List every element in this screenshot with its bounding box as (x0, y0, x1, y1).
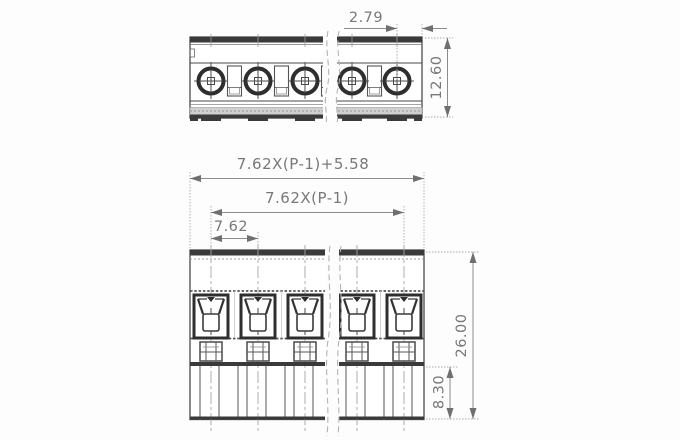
break-gap (325, 246, 339, 436)
mounting-foot (295, 116, 315, 121)
front-view (190, 245, 424, 436)
clamp-opening (288, 295, 322, 338)
dim-label-overall-width: 7.62X(P-1)+5.58 (237, 155, 370, 173)
mounting-foot (342, 116, 362, 121)
dimension-base-height: 8.30 (426, 367, 459, 419)
mounting-foot (201, 116, 221, 121)
dimension-pitch: 7.62 (211, 219, 258, 248)
dimension-top-height: 12.60 (425, 38, 453, 117)
clamp-opening (194, 295, 228, 338)
dim-label-total-height: 26.00 (454, 313, 470, 357)
dim-label-pitch: 7.62 (214, 219, 248, 235)
wire-slot (368, 66, 382, 96)
dim-label-screw-offset: 2.79 (349, 10, 383, 26)
top-view (190, 31, 422, 125)
mounting-foot (387, 116, 407, 121)
solder-pin (200, 342, 222, 361)
drawing-canvas: 2.79 12.60 (0, 0, 680, 440)
solder-pin (393, 342, 415, 361)
break-gap (323, 32, 337, 125)
solder-pin (294, 342, 316, 361)
clamp-opening (387, 295, 421, 338)
solder-pin (247, 342, 269, 361)
dim-label-centers-width: 7.62X(P-1) (265, 189, 349, 207)
mounting-foot (248, 116, 268, 121)
wire-slot (275, 66, 289, 96)
dim-label-top-height: 12.60 (429, 55, 445, 99)
clamp-opening (241, 295, 275, 338)
dim-label-base-height: 8.30 (432, 375, 448, 409)
mounting-foot (190, 116, 198, 121)
terminal-block-drawing: 2.79 12.60 (0, 0, 680, 440)
mounting-foot (414, 116, 422, 121)
clamp-opening (340, 295, 374, 338)
wire-slot (228, 66, 242, 96)
solder-pin (346, 342, 368, 361)
